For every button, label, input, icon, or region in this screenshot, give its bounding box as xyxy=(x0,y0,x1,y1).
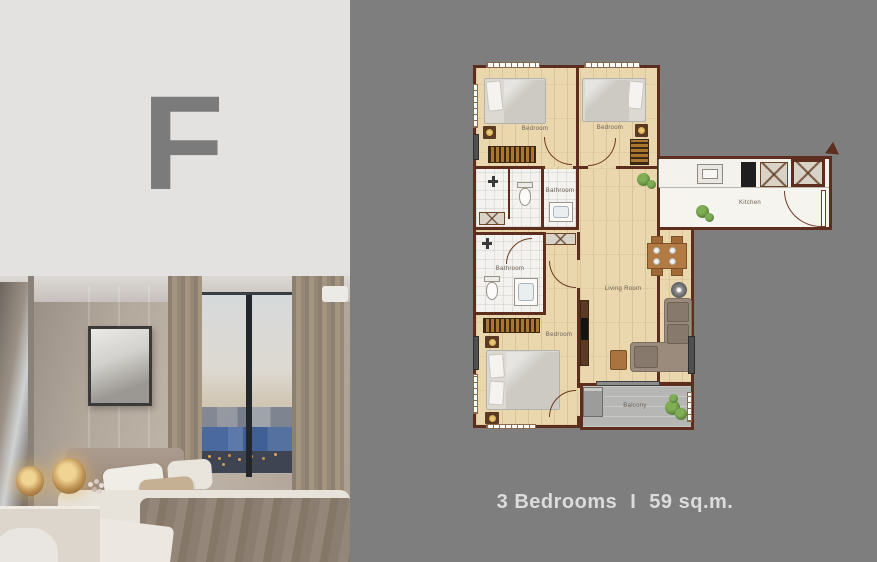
photo-window xyxy=(196,292,298,474)
plant-icon xyxy=(669,394,678,403)
room-label-balcony: Balcony xyxy=(610,403,660,409)
lamp-icon xyxy=(638,127,645,134)
shaft-hatch xyxy=(479,212,505,225)
blanket xyxy=(506,352,559,409)
sink-basin xyxy=(702,169,718,179)
unit-letter: F xyxy=(142,77,224,211)
plate xyxy=(669,247,676,254)
bedroom2-bed xyxy=(582,78,646,122)
tv-icon xyxy=(581,318,588,340)
wall-bath1-right xyxy=(576,169,579,230)
room-label-bedroom3: Bedroom xyxy=(534,332,584,338)
bedroom3-nightstand xyxy=(485,412,499,424)
plant-icon xyxy=(705,213,714,222)
plate xyxy=(669,258,676,265)
dining-chair xyxy=(671,268,683,276)
balcony-unit xyxy=(583,387,603,417)
caption: 3 BedroomsI59 sq.m. xyxy=(470,491,760,514)
window xyxy=(584,62,640,68)
floor-plan: Bedroom Bedroom Bathroom Bathroom xyxy=(470,56,850,438)
room-label-living: Living Room xyxy=(596,286,650,292)
wall-bath2-top xyxy=(476,232,546,235)
dining-chair xyxy=(671,236,683,244)
bedroom3-bed xyxy=(486,350,560,410)
living-ac xyxy=(688,336,695,374)
wall-bath2-bottom xyxy=(476,312,546,315)
bathroom1-toilet xyxy=(519,188,531,206)
caption-bedrooms: 3 Bedrooms xyxy=(497,491,618,513)
storage-hatch xyxy=(545,233,576,245)
room-label-kitchen: Kitchen xyxy=(722,200,778,206)
wall-bath1-divider2 xyxy=(541,169,544,227)
plant-icon xyxy=(675,408,687,420)
bedroom3-nightstand xyxy=(485,336,499,348)
wall-bath1-bottom xyxy=(476,227,578,230)
window xyxy=(473,84,478,128)
bedroom2-nightstand xyxy=(635,124,648,137)
caption-area: 59 sq.m. xyxy=(649,491,733,513)
window xyxy=(687,392,692,422)
photo-window-mullion xyxy=(246,295,252,477)
coffee-table xyxy=(610,350,627,370)
plate xyxy=(653,258,660,265)
room-label-bedroom1: Bedroom xyxy=(510,126,560,132)
bedroom3-wardrobe xyxy=(483,318,540,333)
photo-ac-unit xyxy=(322,286,348,302)
dining-chair xyxy=(651,236,663,244)
kitchen-hatch-framed xyxy=(791,159,825,187)
wall-bedroom-divider xyxy=(576,65,579,169)
blanket xyxy=(585,80,629,121)
entrance-door-leaf xyxy=(821,190,826,227)
photo-artwork-strokes xyxy=(97,363,143,379)
bathroom2-tub xyxy=(514,278,538,306)
kitchen-sink xyxy=(697,164,723,184)
door-gap xyxy=(577,260,580,288)
caption-separator: I xyxy=(630,491,636,513)
bedroom1-ac xyxy=(473,134,479,160)
wall-bath1-divider1 xyxy=(508,169,510,219)
pillow xyxy=(485,80,503,111)
shower-tray xyxy=(553,206,569,218)
photo-city-lights xyxy=(208,455,211,458)
photo-artwork xyxy=(88,326,152,406)
bathroom1-sink xyxy=(492,176,495,187)
lamp-icon xyxy=(489,339,496,346)
bedroom1-wardrobe xyxy=(488,146,536,163)
pillow xyxy=(627,80,645,109)
photo-flowers xyxy=(88,482,93,487)
unit-letter-panel: F xyxy=(0,0,350,276)
bathroom2-toilet xyxy=(486,282,498,300)
photo-table-lamp xyxy=(16,466,44,496)
room-label-bedroom2: Bedroom xyxy=(585,125,635,131)
bedroom-photo xyxy=(0,276,350,562)
door-gap xyxy=(545,166,573,169)
lamp-icon xyxy=(486,129,493,136)
sofa-cushion xyxy=(667,324,689,344)
dining-chair xyxy=(651,268,663,276)
tub-inner xyxy=(518,283,534,301)
blanket xyxy=(504,80,545,123)
sofa-cushion xyxy=(634,346,658,368)
door-gap xyxy=(577,388,580,416)
pillow xyxy=(488,353,505,378)
bedroom1-nightstand xyxy=(483,126,496,139)
floor-lamp xyxy=(671,282,687,298)
window xyxy=(486,424,536,429)
balcony-sliding-door xyxy=(596,381,660,386)
sofa-cushion xyxy=(667,302,689,322)
bedroom1-bed xyxy=(484,78,546,124)
bathroom2-sink xyxy=(486,238,489,249)
pillow xyxy=(488,381,505,406)
photo-table-lamp xyxy=(52,458,86,494)
door-gap xyxy=(588,166,616,169)
plate xyxy=(653,247,660,254)
brochure-page: F xyxy=(0,0,877,562)
window xyxy=(473,374,478,414)
room-label-bathroom1: Bathroom xyxy=(542,188,578,194)
lamp-icon xyxy=(489,415,496,422)
bathroom1-shower xyxy=(549,202,573,222)
window xyxy=(486,62,540,68)
bedroom2-wardrobe xyxy=(630,139,649,165)
room-label-bathroom2: Bathroom xyxy=(488,266,532,272)
bedroom3-ac xyxy=(473,336,479,370)
dining-table xyxy=(647,243,687,269)
kitchen-stove xyxy=(741,162,756,187)
plant-icon xyxy=(647,180,656,189)
kitchen-hatch xyxy=(760,162,788,187)
